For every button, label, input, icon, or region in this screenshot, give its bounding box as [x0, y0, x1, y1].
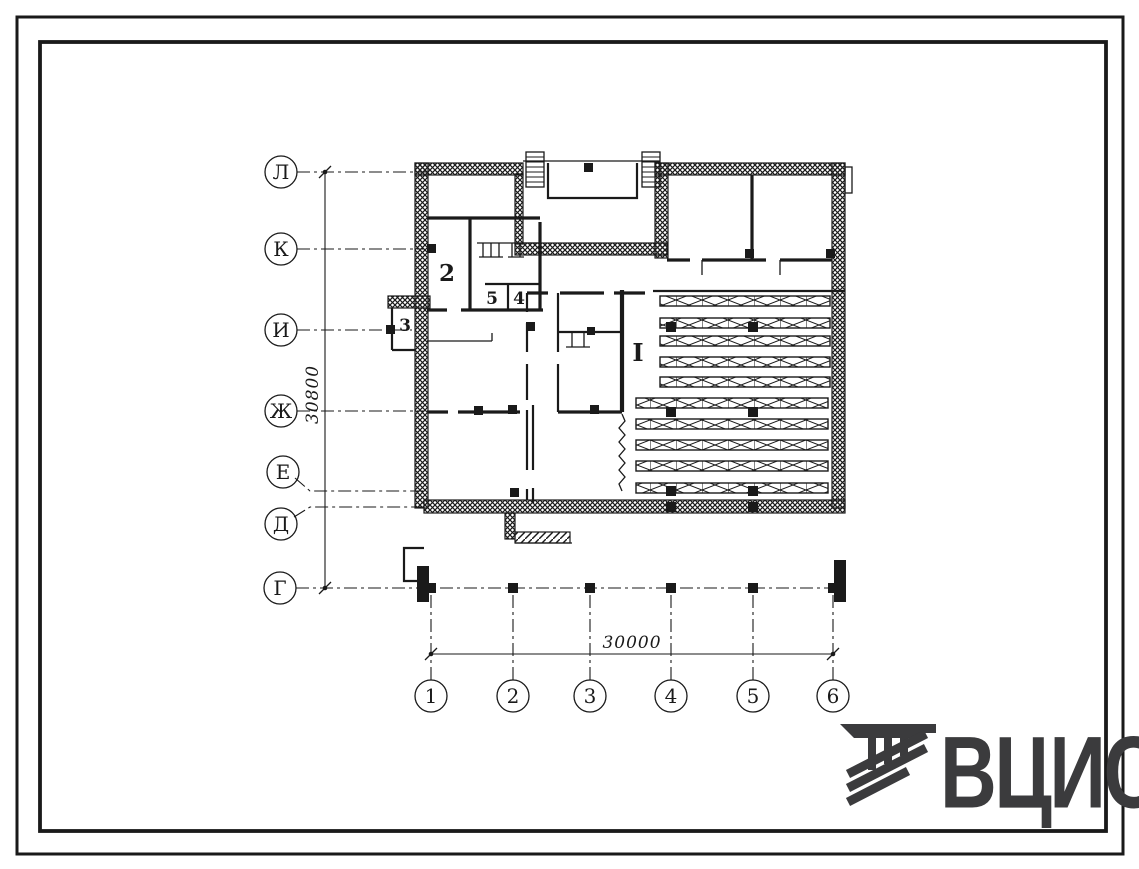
- col-axis-label-0: 1: [425, 684, 438, 708]
- storage-racks: [636, 291, 845, 512]
- room-5-label: 5: [486, 289, 498, 309]
- row-axis-label-3: Ж: [270, 399, 293, 423]
- right-wing-partitions: [667, 175, 835, 275]
- stair-left-icon: [526, 152, 544, 187]
- dimension-vertical: 30800: [303, 166, 331, 594]
- row-axis-label-5: Д: [273, 512, 289, 536]
- col-axis-label-3: 4: [665, 684, 678, 708]
- dim-vertical-label: 30800: [303, 365, 323, 424]
- col-axis-label-1: 2: [507, 684, 520, 708]
- room-3-label: 3: [399, 316, 411, 336]
- col-axis-label-4: 5: [747, 684, 760, 708]
- logo: ВЦИС: [838, 712, 1139, 811]
- row-axis-label-2: И: [272, 318, 289, 342]
- logo-text: ВЦИС: [940, 732, 1139, 815]
- logo-mark-icon: [838, 712, 938, 806]
- col-axis-label-2: 3: [584, 684, 597, 708]
- room-4-label: 4: [513, 289, 525, 309]
- row-axis-label-1: К: [273, 237, 289, 261]
- room-2-label: 2: [439, 260, 455, 287]
- drawing-sheet: 2 3 5 4 I Л К И Ж Е Д: [0, 0, 1139, 869]
- hall-label: I: [632, 338, 643, 367]
- row-axis-label-0: Л: [273, 160, 290, 184]
- row-axis-label-4: Е: [276, 460, 291, 484]
- dim-horizontal-label: 30000: [602, 633, 661, 653]
- room-labels: 2 3 5 4 I: [399, 260, 644, 367]
- row-axis-label-6: Г: [273, 576, 286, 600]
- dimension-horizontal: 30000: [425, 633, 839, 660]
- col-axis-label-5: 6: [827, 684, 840, 708]
